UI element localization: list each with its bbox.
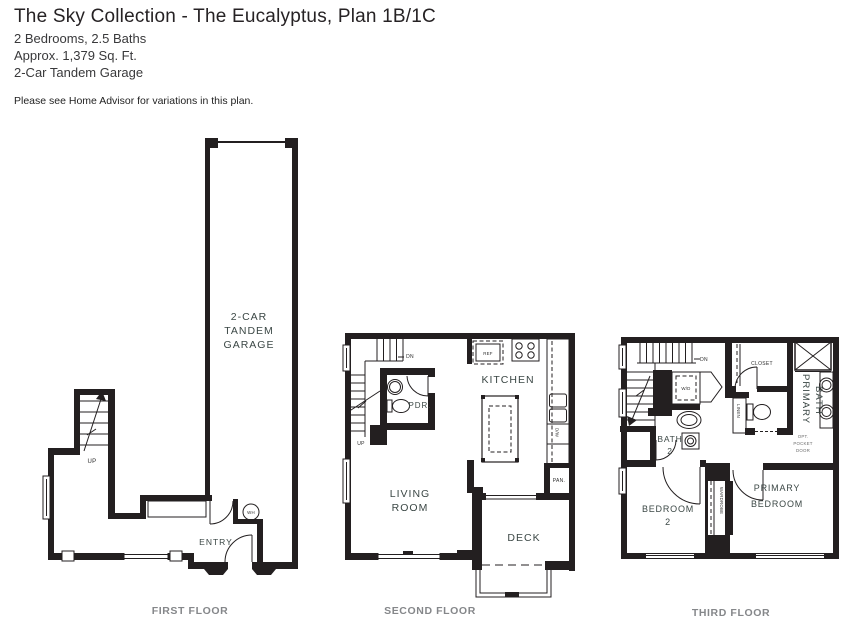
closet-label: CLOSET — [751, 361, 773, 367]
water-heater-label: WH — [247, 510, 255, 515]
third-floor-plan: DN W/D CLOSET LINEN BATH 2 PRIMARY BATH … — [616, 332, 848, 572]
floorplan-sheet: { "header": { "title": "The Sky Collecti… — [0, 0, 868, 627]
page-title: The Sky Collection - The Eucalyptus, Pla… — [14, 6, 436, 28]
bedroom2-label-line1: BEDROOM — [642, 504, 694, 514]
stair-direction-line — [631, 376, 650, 422]
kitchen-label: KITCHEN — [481, 374, 534, 386]
powder-label: PDR. — [408, 401, 431, 410]
primary-bath-label-line2: BATH — [813, 386, 824, 415]
up-label: UP — [357, 441, 365, 447]
entry-threshold-left — [204, 569, 228, 575]
second-floor-windows — [343, 345, 440, 560]
bedroom2-door — [663, 467, 700, 504]
up-label: UP — [88, 459, 97, 465]
pocket-door-label-line1: OPT. — [798, 434, 809, 439]
living-label-line2: ROOM — [392, 502, 429, 514]
variations-note: Please see Home Advisor for variations i… — [14, 95, 436, 107]
garage-entry-door — [210, 501, 233, 524]
deck-features — [476, 496, 551, 598]
washer-dryer-label: W/D — [681, 386, 690, 391]
primary-bedroom-label-line1: PRIMARY — [754, 483, 800, 493]
bath2-label-line2: 2 — [667, 446, 673, 456]
first-floor-walls — [48, 138, 298, 575]
spec-bedrooms-baths: 2 Bedrooms, 2.5 Baths Approx. 1,379 Sq. … — [14, 30, 436, 81]
water-closet — [747, 404, 777, 432]
closet-door — [735, 367, 757, 389]
garage-label-line2: TANDEM — [224, 325, 274, 337]
pantry-label: PAN. — [553, 478, 566, 484]
wardrobe-doors — [711, 481, 714, 535]
dn-label: DN — [700, 357, 708, 363]
stove-icon — [512, 339, 539, 361]
first-floor-plan: WH 2-CAR TANDEM GARAGE UP ENTRY — [40, 135, 310, 580]
living-label-line1: LIVING — [390, 488, 430, 500]
linen-label: LINEN — [736, 404, 741, 418]
stair-arrow-icon — [627, 416, 637, 426]
spec-line-1: 2 Bedrooms, 2.5 Baths — [14, 30, 436, 47]
wall-post — [62, 551, 74, 561]
primary-bath-label-line1: PRIMARY — [800, 374, 811, 424]
garage-label-line3: GARAGE — [224, 339, 275, 351]
pocket-door-label-line2: POCKET — [793, 441, 812, 446]
spec-line-3: 2-Car Tandem Garage — [14, 64, 436, 81]
second-floor-stairs — [348, 339, 404, 437]
bedroom2-label-line2: 2 — [665, 517, 671, 527]
dn-label: DN — [406, 354, 414, 360]
wall-post — [170, 551, 182, 561]
bath2-label-line1: BATH — [657, 434, 682, 444]
second-floor-plan: DN UP PDR. KITCHEN REF D/W PAN. LIVING R… — [340, 330, 585, 605]
entry-bench — [148, 501, 206, 517]
third-floor-caption: THIRD FLOOR — [692, 607, 770, 619]
first-floor-stairs — [80, 391, 108, 451]
primary-bedroom-label-line2: BEDROOM — [751, 499, 803, 509]
dishwasher-label: D/W — [555, 428, 560, 438]
window-mullion — [403, 551, 413, 555]
toilet-icon — [747, 404, 753, 420]
stair-break-line — [348, 391, 380, 412]
laundry-door — [700, 372, 722, 402]
kitchen-counter — [547, 339, 569, 465]
water-heater-icon: WH — [243, 504, 259, 520]
laundry-closet — [672, 372, 722, 404]
toilet-icon — [387, 400, 392, 412]
first-floor-caption: FIRST FLOOR — [152, 605, 229, 617]
garage-label-line1: 2-CAR — [231, 311, 268, 323]
kitchen-fixtures — [473, 339, 569, 465]
pocket-door-label-line3: DOOR — [796, 448, 810, 453]
entry-label: ENTRY — [199, 537, 233, 547]
spec-line-2: Approx. 1,379 Sq. Ft. — [14, 47, 436, 64]
wardrobe-label: WARDROBE — [719, 487, 724, 514]
refrigerator-label: REF — [483, 351, 492, 356]
second-floor-caption: SECOND FLOOR — [384, 605, 476, 617]
header: The Sky Collection - The Eucalyptus, Pla… — [14, 6, 436, 107]
entry-threshold-right — [252, 569, 276, 575]
deck-label: DECK — [507, 532, 540, 544]
shower — [795, 342, 831, 372]
